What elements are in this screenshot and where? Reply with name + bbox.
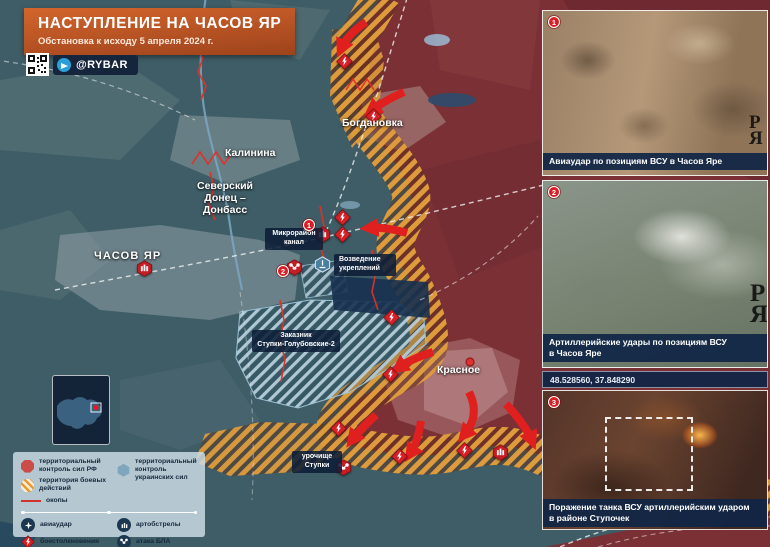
legend-label: боестолкновения (40, 538, 113, 546)
coordinates-bar: 48.528560, 37.848290 (542, 371, 768, 388)
legend-item-airstrike: авиаудар (21, 518, 113, 532)
ukraine-locator-inset (52, 375, 110, 445)
panel-number-badge: 3 (548, 396, 560, 408)
legend-divider (21, 511, 197, 515)
airstrike-icon (21, 518, 35, 532)
place-label-bogdanovka: Богдановка (342, 117, 403, 129)
watermark: РЯ (750, 283, 765, 326)
legend-item-ua-control: территориальный контроль украинских сил (117, 458, 197, 482)
clash-icon (391, 448, 408, 470)
area-label-zakaznik: Заказник Ступки-Голубовские-2 (252, 330, 340, 352)
panel-caption: Артиллерийские удары по позициям ВСУ в Ч… (543, 334, 767, 362)
legend-label: окопы (46, 497, 113, 505)
legend-label: артобстрелы (136, 521, 197, 529)
artillery-icon (492, 444, 509, 466)
photo-panel-artillery: 2 РЯ Артиллерийские удары по позициям ВС… (542, 180, 768, 368)
photo-panel-tank-strike: 3 Поражение танка ВСУ артиллерийским уда… (542, 390, 768, 530)
area-label-urochishche-stupki: урочище Ступки (292, 451, 342, 473)
legend-label: территориальный контроль украинских сил (135, 458, 197, 482)
photo-panel-airstrike: 1 РЯ Авиаудар по позициям ВСУ в Часов Яр… (542, 10, 768, 176)
clash-icon (382, 366, 399, 388)
legend-item-clashes: боестолкновения (21, 535, 113, 547)
target-reticle (605, 417, 693, 491)
channel-name: @RYBAR (76, 59, 128, 71)
legend-item-shelling: артобстрелы (117, 518, 197, 532)
clash-icon (330, 420, 347, 442)
clashes-icon (21, 535, 35, 547)
legend-item-trenches: окопы (21, 497, 113, 505)
place-label-kalinina: Калинина (225, 147, 275, 159)
legend-item-uav: атака БЛА (117, 535, 197, 547)
panel-number-badge: 2 (548, 186, 560, 198)
fortification-label-group: Возведение укреплений (314, 254, 396, 276)
map-marker-2: 2 (277, 265, 289, 277)
clash-icon (456, 442, 473, 464)
legend-label: территория боевых действий (39, 477, 113, 493)
panel-caption: Поражение танка ВСУ артиллерийским ударо… (543, 499, 767, 527)
map-title: НАСТУПЛЕНИЕ НА ЧАСОВ ЯР (38, 15, 281, 33)
clash-icon (334, 226, 351, 248)
legend-label: территориальный контроль сил РФ (39, 458, 113, 474)
place-label-chasov-yar: ЧАСОВ ЯР (94, 250, 161, 262)
fortification-label: Возведение укреплений (334, 254, 396, 276)
fortification-icon (314, 256, 331, 273)
panel-caption: Авиаудар по позициям ВСУ в Часов Яре (543, 153, 767, 170)
uav-icon (117, 535, 131, 547)
shelling-icon (117, 518, 131, 532)
watermark: РЯ (749, 115, 764, 147)
ua-control-icon (117, 464, 130, 477)
combat-zone-icon (21, 479, 34, 492)
title-block: НАСТУПЛЕНИЕ НА ЧАСОВ ЯР Обстановка к исх… (24, 8, 295, 55)
place-label-krasnoe: Красное (437, 364, 480, 376)
artillery-icon (136, 260, 153, 282)
place-label-canal: Северский Донец – Донбасс (186, 180, 264, 216)
rf-control-icon (21, 460, 34, 473)
panel-number-badge: 1 (548, 16, 560, 28)
legend-label: атака БЛА (136, 538, 197, 546)
area-label-mikroraion-kanal: Микрорайон канал (265, 228, 323, 250)
legend-label: авиаудар (40, 521, 113, 529)
map-marker-1: 1 (303, 219, 315, 231)
legend-item-rf-control: территориальный контроль сил РФ (21, 458, 113, 474)
map-subtitle: Обстановка к исходу 5 апреля 2024 г. (38, 36, 281, 47)
trench-icon (21, 500, 41, 502)
qr-code (26, 53, 49, 76)
legend-item-combat-zone: территория боевых действий (21, 477, 113, 493)
infographic-canvas: 1 2 Калинина Северский Донец – Донбасс Б… (0, 0, 770, 547)
clash-icon (383, 309, 400, 331)
telegram-icon (57, 58, 71, 72)
clash-icon (336, 53, 353, 75)
telegram-badge[interactable]: @RYBAR (53, 55, 138, 75)
legend-panel: территориальный контроль сил РФ территор… (13, 452, 205, 537)
